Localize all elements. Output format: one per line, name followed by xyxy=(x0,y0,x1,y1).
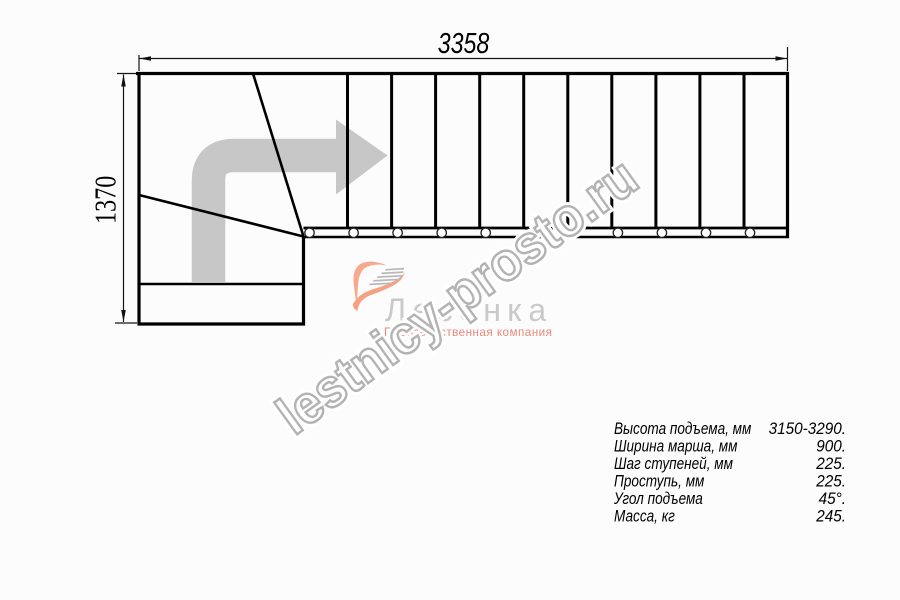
svg-text:3150-3290.: 3150-3290. xyxy=(769,419,846,438)
svg-text:225.: 225. xyxy=(815,472,846,491)
svg-text:225.: 225. xyxy=(815,454,846,473)
svg-text:3358: 3358 xyxy=(438,26,490,59)
svg-text:Проступь, мм: Проступь, мм xyxy=(614,472,705,491)
svg-text:45°.: 45°. xyxy=(819,489,846,508)
svg-text:Ширина марша, мм: Ширина марша, мм xyxy=(614,437,738,456)
svg-text:245.: 245. xyxy=(815,507,846,526)
svg-text:Масса, кг: Масса, кг xyxy=(614,507,675,526)
svg-text:Угол подъема: Угол подъема xyxy=(613,489,703,508)
svg-text:Высота подъема, мм: Высота подъема, мм xyxy=(614,419,752,438)
svg-text:Шаг ступеней, мм: Шаг ступеней, мм xyxy=(614,454,733,473)
svg-text:900.: 900. xyxy=(816,437,846,456)
svg-text:lestnicy-prosto.ru: lestnicy-prosto.ru xyxy=(266,147,649,446)
svg-text:1370: 1370 xyxy=(89,176,124,224)
